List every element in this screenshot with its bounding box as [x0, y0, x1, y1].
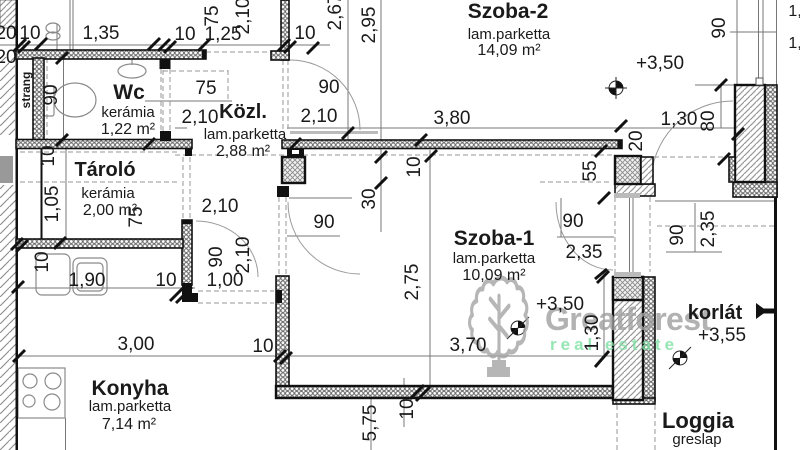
svg-text:10: 10 — [32, 251, 53, 272]
svg-text:20: 20 — [0, 47, 17, 68]
svg-text:10: 10 — [174, 24, 195, 45]
svg-text:10: 10 — [155, 270, 176, 291]
svg-text:2,35: 2,35 — [566, 242, 603, 263]
svg-text:2,67: 2,67 — [325, 0, 346, 30]
svg-text:55: 55 — [580, 160, 601, 181]
svg-text:2,88 m²: 2,88 m² — [216, 143, 271, 160]
svg-text:80: 80 — [698, 110, 719, 131]
svg-text:2,10: 2,10 — [202, 196, 239, 217]
svg-text:2,10: 2,10 — [233, 0, 254, 34]
svg-text:90: 90 — [313, 212, 334, 233]
svg-text:2,10: 2,10 — [233, 237, 254, 274]
svg-text:korlát: korlát — [688, 302, 743, 324]
svg-text:Szoba-1: Szoba-1 — [454, 227, 535, 250]
svg-text:1,: 1, — [788, 3, 800, 20]
svg-text:14,09 m²: 14,09 m² — [477, 42, 541, 59]
svg-text:1,90: 1,90 — [69, 270, 106, 291]
svg-text:20: 20 — [626, 130, 647, 151]
svg-text:1,30: 1,30 — [661, 109, 698, 130]
svg-text:5,75: 5,75 — [360, 405, 381, 442]
svg-text:10: 10 — [397, 398, 418, 419]
svg-text:1,30: 1,30 — [582, 315, 603, 352]
svg-text:3,70: 3,70 — [450, 335, 487, 356]
svg-text:lam.parketta: lam.parketta — [204, 126, 287, 143]
svg-text:3,00: 3,00 — [118, 334, 155, 355]
svg-text:Szoba-2: Szoba-2 — [468, 0, 549, 23]
svg-text:+3,50: +3,50 — [536, 294, 584, 315]
svg-text:10: 10 — [19, 23, 40, 44]
svg-text:real estate: real estate — [550, 335, 678, 354]
svg-text:10: 10 — [252, 336, 273, 357]
svg-text:Tároló: Tároló — [74, 159, 135, 181]
svg-text:kerámia: kerámia — [81, 185, 135, 202]
svg-text:90: 90 — [667, 224, 688, 245]
svg-text:90: 90 — [41, 84, 62, 105]
svg-text:2,95: 2,95 — [359, 7, 380, 44]
svg-text:75: 75 — [195, 78, 216, 99]
svg-text:10,09 m²: 10,09 m² — [462, 267, 526, 284]
svg-text:Wc: Wc — [113, 81, 145, 104]
svg-text:1,05: 1,05 — [42, 186, 63, 223]
svg-text:lam.parketta: lam.parketta — [453, 250, 536, 267]
svg-text:Közl.: Közl. — [219, 101, 267, 123]
svg-text:lam.parketta: lam.parketta — [468, 26, 551, 43]
svg-text:strang: strang — [19, 72, 33, 109]
svg-text:90: 90 — [206, 246, 227, 267]
svg-text:30: 30 — [359, 188, 380, 209]
svg-text:20: 20 — [0, 23, 17, 44]
svg-text:1,22 m²: 1,22 m² — [101, 121, 156, 138]
svg-text:Loggia: Loggia — [662, 408, 735, 433]
svg-text:75: 75 — [202, 5, 223, 26]
svg-text:10: 10 — [294, 23, 315, 44]
svg-text:90: 90 — [709, 17, 730, 38]
svg-text:1,35: 1,35 — [83, 23, 120, 44]
svg-text:Konyha: Konyha — [91, 377, 168, 400]
svg-text:2,35: 2,35 — [698, 211, 719, 248]
svg-text:+3,55: +3,55 — [698, 325, 746, 346]
svg-text:10: 10 — [404, 156, 425, 177]
svg-text:1,: 1, — [788, 35, 800, 52]
svg-text:2,10: 2,10 — [301, 106, 338, 127]
svg-text:lam.parketta: lam.parketta — [89, 398, 172, 415]
svg-text:2,10: 2,10 — [182, 107, 219, 128]
svg-text:+3,50: +3,50 — [636, 53, 684, 74]
svg-text:2,75: 2,75 — [402, 264, 423, 301]
svg-text:greslap: greslap — [672, 431, 721, 448]
svg-text:90: 90 — [562, 211, 583, 232]
svg-text:75: 75 — [126, 206, 147, 227]
svg-text:90: 90 — [318, 77, 339, 98]
svg-text:kerámia: kerámia — [101, 104, 155, 121]
svg-text:3,80: 3,80 — [434, 108, 471, 129]
svg-text:7,14 m²: 7,14 m² — [102, 416, 157, 433]
svg-text:10: 10 — [38, 145, 59, 166]
